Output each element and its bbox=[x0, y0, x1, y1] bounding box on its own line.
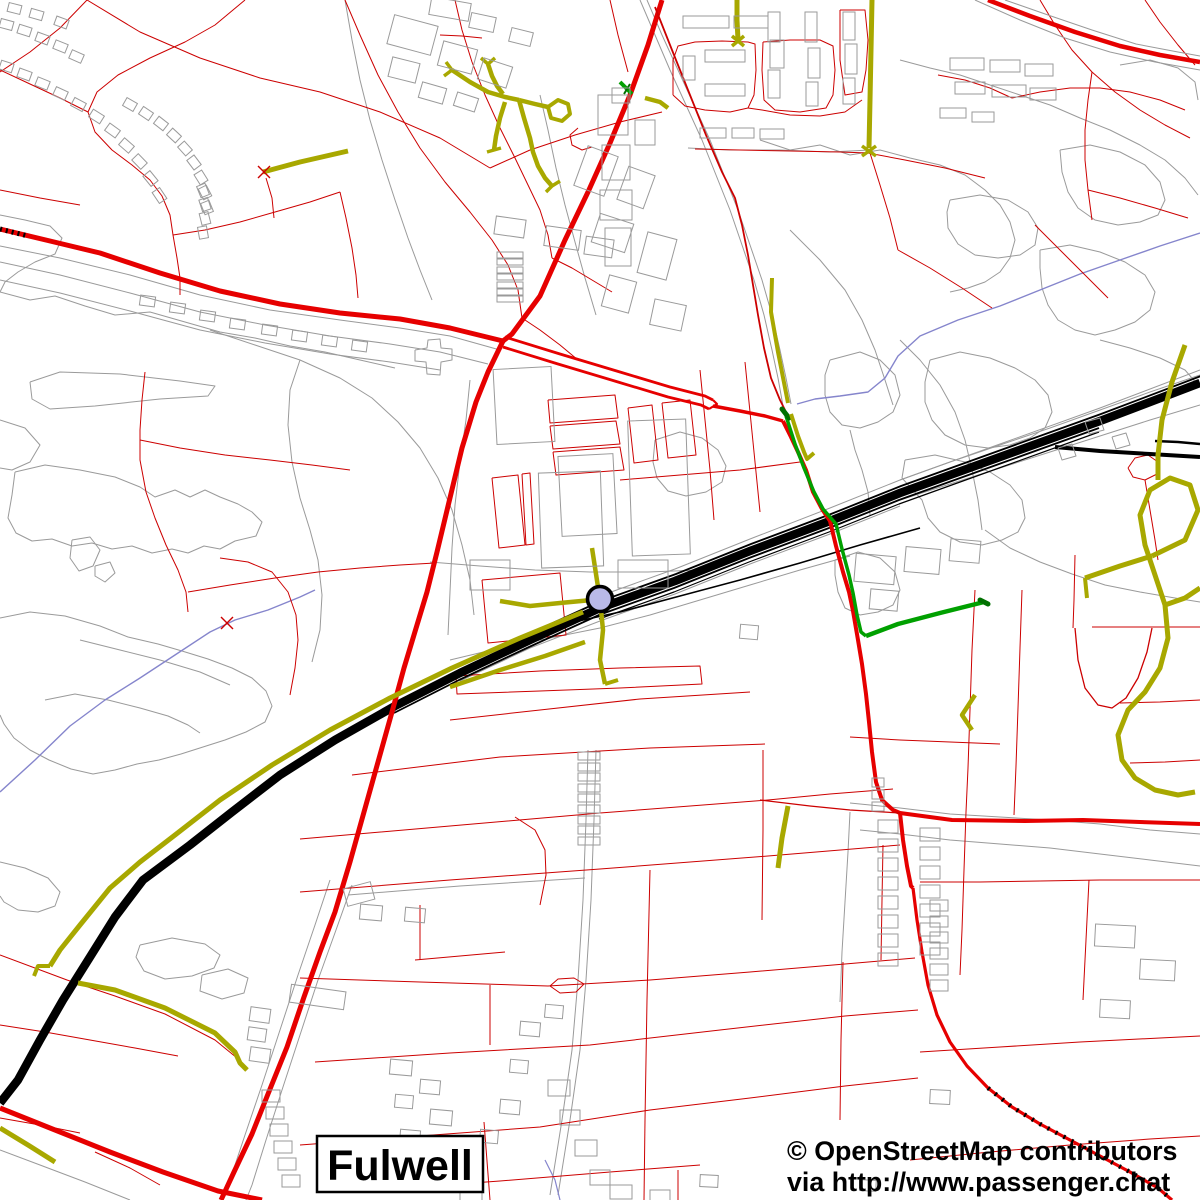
svg-text:Fulwell: Fulwell bbox=[327, 1142, 473, 1190]
svg-text:© OpenStreetMap contributors: © OpenStreetMap contributors bbox=[787, 1136, 1177, 1166]
svg-text:via http://www.passenger.chat: via http://www.passenger.chat bbox=[787, 1167, 1170, 1197]
